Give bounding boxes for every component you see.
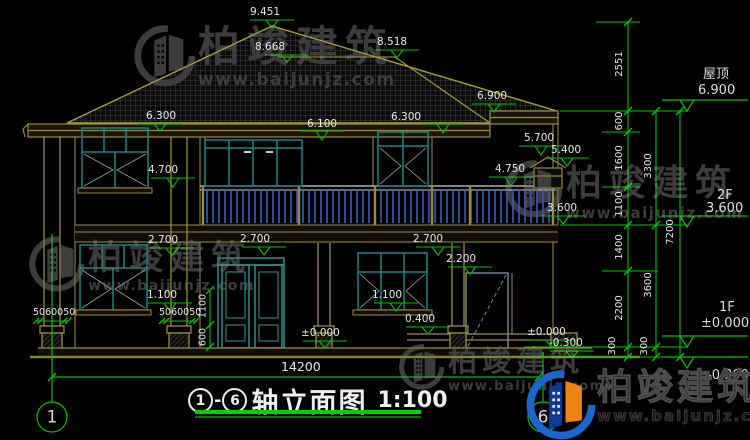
dim-ridge-side: 8.518 (377, 37, 407, 48)
dim-slab-2f: 3.600 (547, 203, 577, 214)
dim-win2f-head: 6.100 (307, 119, 337, 130)
dim-col-right: 5060050 (159, 308, 201, 318)
dim-ridge-main: 9.451 (250, 7, 280, 18)
drawing-title: 1 - 6 轴立面图 1:100 (188, 381, 448, 420)
dim-eave-center: 6.300 (391, 112, 421, 123)
label-roof: 屋顶 (703, 68, 729, 81)
window-2f-left (78, 128, 152, 193)
dim-total-width: 14200 (281, 361, 321, 374)
axis-bubble-1: 1 (47, 410, 58, 427)
dim-head-1f-left: 2.700 (148, 235, 178, 246)
dim-head-1f-center: 2.700 (240, 234, 270, 245)
dim-sill-2f: 4.700 (148, 165, 178, 176)
level-1f: ±0.000 (701, 317, 749, 330)
watermark-bottom-left: 柏竣建筑 www.baijunjz.com (88, 241, 255, 293)
chain-a-0: 2551 (615, 51, 625, 76)
dim-door-right-head: 2.200 (446, 254, 476, 265)
title-underline (195, 410, 421, 414)
dim-v-lower: 600 (198, 328, 208, 346)
chain-a-6: 300 (608, 336, 618, 355)
level-roof: 6.900 (698, 84, 735, 97)
chain-b-1: 3600 (644, 272, 654, 297)
dim-ground-right: -0.300 (549, 338, 583, 349)
watermark-logo-left (28, 236, 84, 292)
chain-b-2: 300 (640, 336, 650, 355)
dim-v-upper: 1100 (198, 294, 208, 318)
dim-turret-eave: 5.400 (551, 145, 581, 156)
dim-ridge-rear: 8.668 (255, 42, 285, 53)
balcony-railing (200, 186, 556, 225)
dim-floor-right: ±0.000 (527, 327, 566, 338)
dim-floor-main: ±0.000 (301, 328, 340, 339)
chain-a-3: 1100 (615, 191, 625, 216)
level-2f: 3.600 (706, 202, 743, 215)
dim-eave-left: 6.300 (146, 111, 176, 122)
chain-c-0: 7200 (666, 219, 676, 244)
dim-rail-top: 4.750 (495, 164, 525, 175)
chain-b-0: 3300 (644, 153, 654, 178)
dim-eave-right: 6.900 (477, 91, 507, 102)
dim-turret-top: 5.700 (524, 133, 554, 144)
chain-a-4: 1400 (615, 234, 625, 259)
label-1f: 1F (719, 301, 735, 314)
chain-a-5: 2200 (615, 295, 625, 320)
title-dash: - (214, 390, 221, 411)
title-text: 轴立面图 (251, 381, 367, 420)
watermark-logo-top (133, 25, 195, 87)
dim-head-1f-right: 2.700 (413, 234, 443, 245)
brand-site: www.baijunjz.com (597, 409, 750, 424)
dim-platform: 0.400 (405, 314, 435, 325)
dim-col-left: 5060050 (33, 308, 75, 318)
brand-logo (523, 370, 597, 440)
title-underline-2 (195, 416, 421, 418)
chain-a-1: 600 (615, 111, 625, 130)
brand-text-block: 柏竣建筑 www.baijunjz.com (597, 370, 750, 424)
watermark-top: 柏竣建筑 www.baijunjz.com (198, 26, 396, 89)
dim-sill-1f-left: 1.100 (147, 290, 177, 301)
chain-a-2: 1600 (615, 145, 625, 170)
dim-sill-1f-right: 1.100 (372, 290, 402, 301)
window-2f-right (378, 132, 428, 186)
brand-footer: 柏竣建筑 www.baijunjz.com (523, 370, 750, 440)
window-2f-center (205, 140, 302, 186)
brand-name: 柏竣建筑 (597, 370, 750, 406)
cad-elevation-drawing: 柏竣建筑 www.baijunjz.com 柏竣建筑 www.baijunjz.… (0, 0, 750, 440)
